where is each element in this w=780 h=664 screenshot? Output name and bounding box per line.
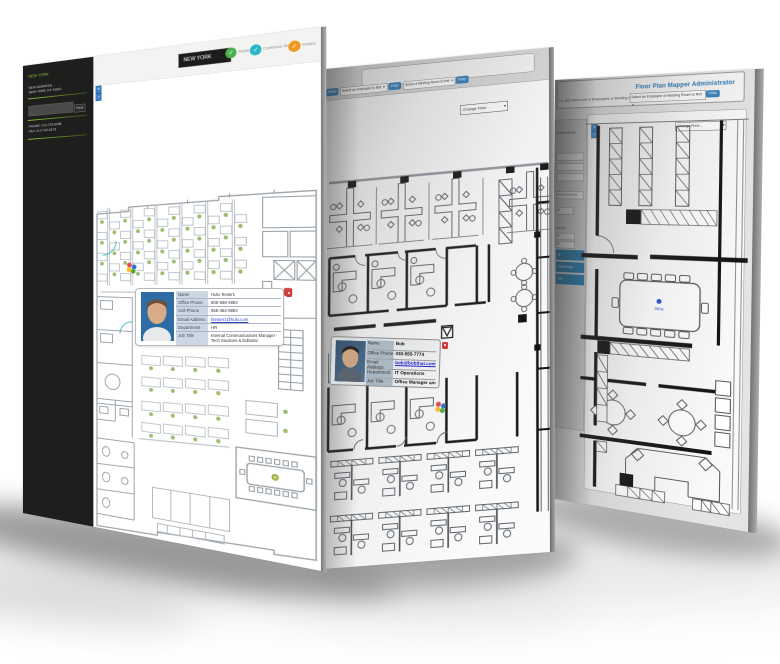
svg-text:Intra: Intra <box>654 306 663 311</box>
